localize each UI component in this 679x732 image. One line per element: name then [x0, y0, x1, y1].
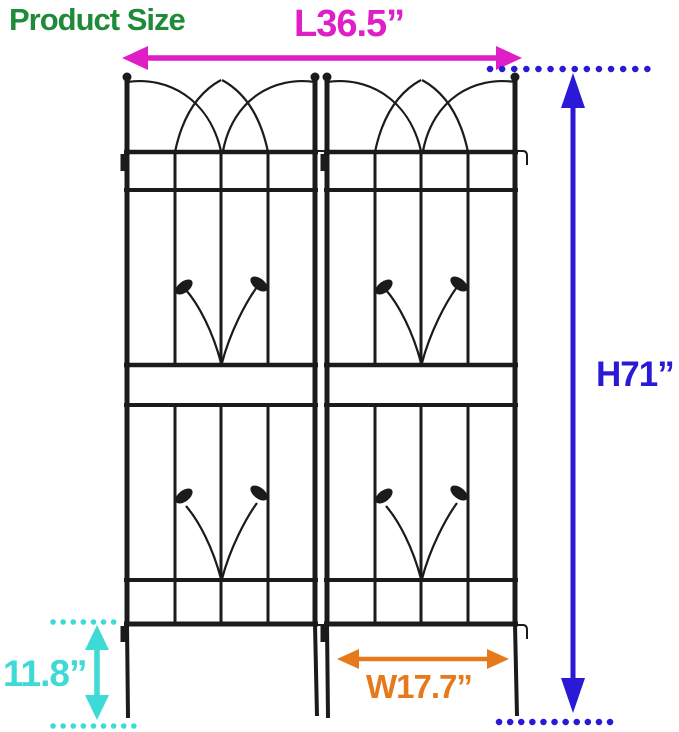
product-size-diagram: Product Size L36.5” H71” 11.8” W17.7” — [0, 0, 679, 732]
trellis-panel-right — [321, 73, 528, 719]
panel-width-arrow — [337, 649, 509, 669]
trellis-panel-left — [121, 73, 328, 719]
trellis-illustration — [0, 0, 679, 732]
length-arrow — [122, 46, 522, 70]
